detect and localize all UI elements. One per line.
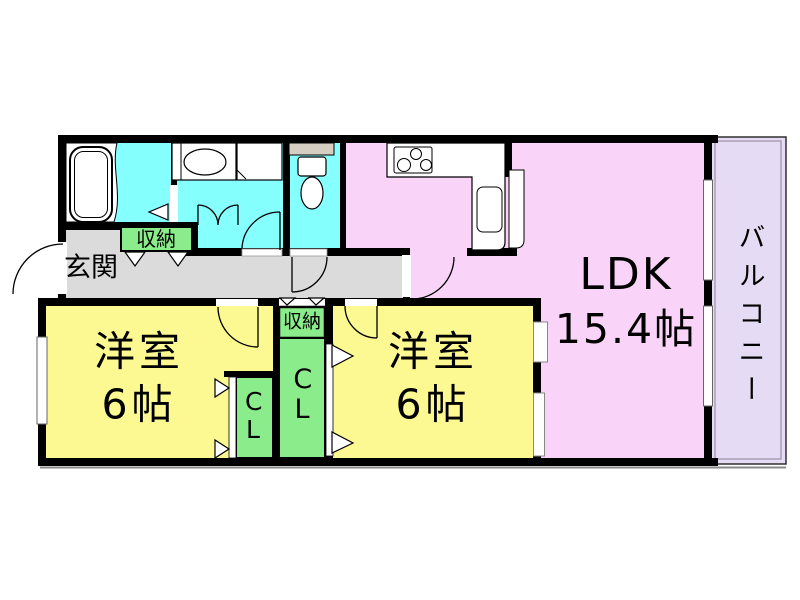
entrance-door-arc [13,244,63,294]
closet-center-label: CL [293,365,310,425]
sliding-door-2-icon [534,393,545,456]
bath-fixtures [66,143,117,222]
ldk-label: LDK 15.4帖 [555,246,697,356]
balcony-window-2-icon [704,306,713,406]
bath-door-opening [170,185,178,222]
hall-storage-label: 収納 [136,226,176,252]
bathtub-icon [70,147,112,222]
balcony-window-1-icon [704,180,713,280]
closet-west-door-panel [229,377,236,458]
bedroom-center-door-opening [345,299,377,306]
bedroom-west-label: 洋室 6帖 [94,326,184,433]
floor-plan: 玄関 収納 収納 CL CL 洋室 6帖 洋室 6帖 LDK 15.4帖 バルコ… [0,0,800,600]
bedroom-center-label: 洋室 6帖 [388,326,478,433]
closet-west-label: CL [245,388,261,444]
balcony-label: バルコニー [731,223,766,413]
bedroom-west-door-opening [216,299,258,306]
toilet-shelf-icon [289,143,334,155]
toilet-threshold [290,249,327,256]
washing-machine-pan-icon [237,143,282,180]
center-storage-label: 収納 [283,310,321,335]
washroom-threshold [242,249,282,256]
toilet-icon [298,157,326,176]
window-west-icon [37,337,47,424]
sliding-door-1-icon [534,322,548,362]
refrigerator-space-icon [509,170,524,248]
entrance-label: 玄関 [64,250,118,285]
kitchen-sink-icon [477,187,502,232]
ldk-door-opening [402,255,411,297]
